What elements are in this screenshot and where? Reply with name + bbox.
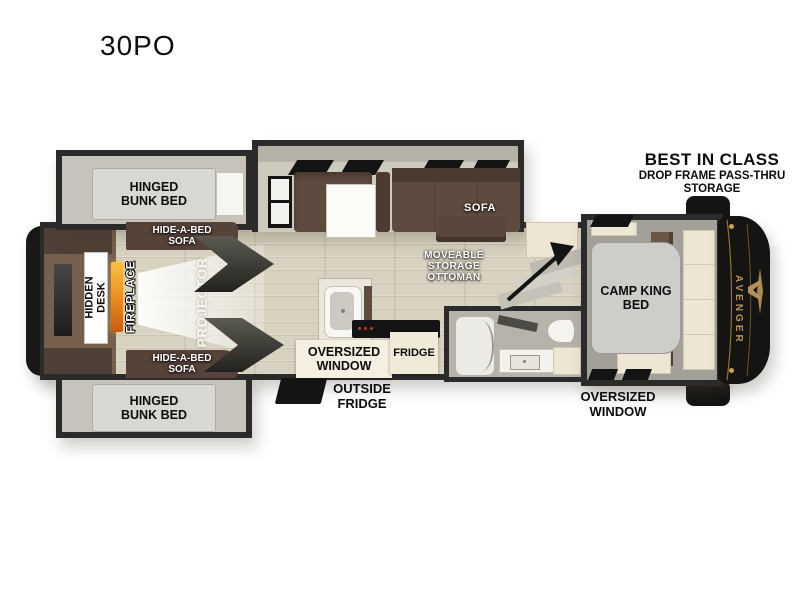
tv-screen <box>54 264 72 336</box>
ottoman-label: MOVEABLE STORAGE OTTOMAN <box>404 250 504 284</box>
bunk-window-top <box>216 172 244 216</box>
bathroom <box>444 306 586 382</box>
sofa-armrest <box>376 172 390 232</box>
faucet <box>341 309 345 313</box>
bedroom-window-bottom <box>588 369 618 380</box>
sofa-table <box>326 184 376 238</box>
stove-knob <box>370 327 373 330</box>
stove-knob <box>358 327 361 330</box>
vanity <box>499 349 555 373</box>
oversized-window-label-bedroom: OVERSIZED WINDOW <box>574 390 662 419</box>
avenger-wordmark: AVENGER <box>730 262 744 358</box>
stairs-arrow-icon <box>498 236 582 308</box>
bedroom-window-top <box>590 215 634 227</box>
front-cap: AVENGER <box>718 216 770 384</box>
window-pane <box>271 203 289 224</box>
camp-king-bed: CAMP KING BED <box>591 242 681 354</box>
storage-ottoman <box>436 216 506 242</box>
model-label: 30PO <box>100 30 176 62</box>
fold-arrow-icon <box>194 228 278 300</box>
floorplan-page: 30PO BEST IN CLASS DROP FRAME PASS-THRU … <box>0 0 800 600</box>
best-in-class-callout: BEST IN CLASS DROP FRAME PASS-THRU STORA… <box>606 150 800 196</box>
shower <box>456 317 494 375</box>
callout-subtitle: DROP FRAME PASS-THRU STORAGE <box>606 170 800 196</box>
eagle-emblem-icon <box>748 268 766 314</box>
cap-marker-light <box>729 368 734 373</box>
wardrobe <box>683 230 715 370</box>
side-window <box>268 176 292 228</box>
oversized-window-label-kitchen: OVERSIZED WINDOW <box>296 340 392 378</box>
toilet <box>547 319 575 343</box>
sofa-back <box>392 168 520 182</box>
bedroom: CAMP KING BED <box>581 214 723 386</box>
upper-cabinet <box>44 228 112 254</box>
bunk-room-top: HINGED BUNK BED <box>56 150 252 230</box>
fridge: FRIDGE <box>390 332 438 374</box>
fold-arrow-icon <box>204 312 288 378</box>
bunk-bed-bottom: HINGED BUNK BED <box>92 384 216 432</box>
vanity-faucet <box>523 360 526 363</box>
bath-cabinet <box>553 347 581 375</box>
shower-curtain <box>470 321 494 371</box>
sofa-label: SOFA <box>440 202 520 214</box>
bunk-room-bottom: HINGED BUNK BED <box>56 374 252 438</box>
callout-title: BEST IN CLASS <box>606 150 800 169</box>
bath-partition <box>497 315 538 332</box>
bunk-bed-top: HINGED BUNK BED <box>92 168 216 220</box>
cap-marker-light <box>729 224 734 229</box>
lower-cabinet <box>44 348 112 374</box>
window-pane <box>271 179 289 200</box>
stove-knob <box>364 327 367 330</box>
outside-fridge-label: OUTSIDE FRIDGE <box>318 382 406 411</box>
hidden-desk-label: HIDDEN DESK <box>82 252 110 344</box>
bedroom-window-bottom <box>622 369 652 380</box>
